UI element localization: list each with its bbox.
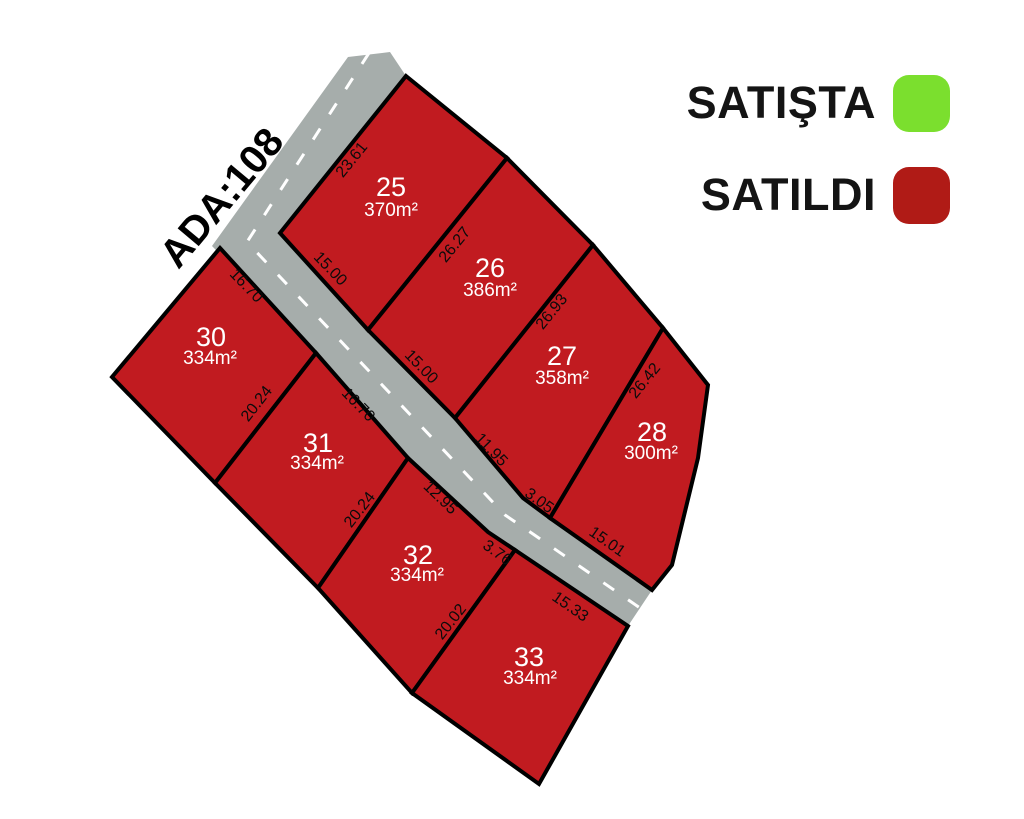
plot-27-area: 358m² [535, 368, 589, 389]
plot-25-number: 25 [376, 172, 406, 202]
plot-25-area: 370m² [364, 200, 418, 221]
legend-label-for-sale: SATIŞTA [687, 74, 876, 132]
plot-30-area: 334m² [183, 348, 237, 369]
plot-28-area: 300m² [624, 443, 678, 464]
land-plot-map-page: ADA:108 25 370m² 26 386m² 27 358m² 28 30… [0, 0, 1024, 819]
legend-swatch-for-sale-green [893, 75, 950, 132]
plot-26-area: 386m² [463, 280, 517, 301]
plot-33-area: 334m² [503, 668, 557, 689]
legend-item-for-sale: SATIŞTA [687, 74, 950, 132]
plot-26-number: 26 [475, 253, 505, 283]
plot-31-area: 334m² [290, 453, 344, 474]
legend-item-sold: SATILDI [701, 166, 950, 224]
plot-32-area: 334m² [390, 565, 444, 586]
plot-27-number: 27 [547, 341, 577, 371]
legend-label-sold: SATILDI [701, 166, 876, 224]
legend-swatch-sold-red [893, 167, 950, 224]
